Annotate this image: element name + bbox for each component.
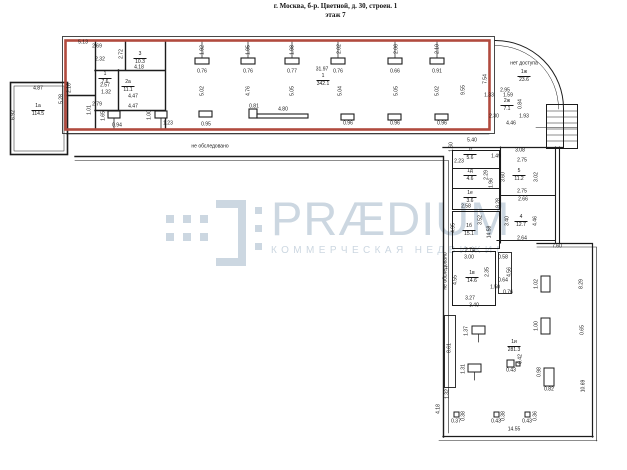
plan-title: г. Москва, б-р. Цветной, д. 30, строен. … xyxy=(22,2,627,20)
dimension-label: 0.91 xyxy=(432,70,442,75)
dimension-label: 5.04 xyxy=(339,86,344,96)
dimension-label: 5.05 xyxy=(291,86,296,96)
dimension-label: 7.60 xyxy=(552,245,562,250)
dimension-label: 1.65 xyxy=(102,111,107,121)
dimension-label: 1.60 xyxy=(450,142,455,152)
dimension-label: 4.80 xyxy=(278,108,288,113)
dimension-label: 0.95 xyxy=(201,123,211,128)
room-number: 1б xyxy=(466,224,472,229)
dimension-label: 1.32 xyxy=(101,91,111,96)
dimension-label: 1.49 xyxy=(491,155,501,160)
room-label: 2а11.1 xyxy=(122,80,135,94)
dimension-label: 2.30 xyxy=(489,115,499,120)
dimension-label: 2.69 xyxy=(92,45,102,50)
dimension-label: 0.64 xyxy=(498,279,508,284)
room-number: 2а xyxy=(125,80,131,85)
dimension-label: 0.96 xyxy=(343,122,353,127)
dimension-label: 1.01 xyxy=(88,105,93,115)
room-area: 11.1 xyxy=(123,88,132,93)
room-number: 5 xyxy=(518,169,521,174)
dimension-label: 3.60 xyxy=(502,172,507,182)
room-number: 4 xyxy=(520,215,523,220)
note-label: не обследовано xyxy=(444,252,449,289)
dimension-label: 0.42 xyxy=(519,354,524,364)
room-number: 3 xyxy=(139,52,142,57)
dimension-label: 10.69 xyxy=(582,380,587,393)
room-number: 1е xyxy=(467,191,473,196)
room-label: 1г5.6 xyxy=(464,148,477,162)
dimension-label: 0.37 xyxy=(451,420,461,425)
dimension-label: 14.58 xyxy=(488,226,493,239)
dimension-label: 3.40 xyxy=(469,304,479,309)
room-label: 412.7 xyxy=(515,215,528,229)
dimension-label: 1.93 xyxy=(519,115,529,120)
room-number: 1а xyxy=(35,104,41,109)
room-area: 281.3 xyxy=(508,348,521,353)
room-label: 2ж7.1 xyxy=(501,99,514,113)
room-number: 1ж xyxy=(521,70,527,75)
dimension-label: 4.95 xyxy=(452,223,457,233)
dimension-label: 4.46 xyxy=(506,122,516,127)
dimension-label: 0.36 xyxy=(534,411,539,421)
dimension-label: 1.23 xyxy=(163,122,173,127)
dimension-label: 0.81 xyxy=(249,105,259,110)
dimension-label: 3.40 xyxy=(506,216,511,226)
room-label: 1а114.5 xyxy=(32,104,45,118)
dimension-label: 4.56 xyxy=(508,267,513,277)
room-area: 114.5 xyxy=(32,112,44,117)
dimension-label: 0.38 xyxy=(462,411,467,421)
dimension-label: 0.96 xyxy=(437,122,447,127)
dimension-label: 2.58 xyxy=(461,205,471,210)
dimension-label: 2.75 xyxy=(517,190,527,195)
dimension-label: 2.32 xyxy=(95,58,105,63)
dimension-label: 2.16 xyxy=(68,83,73,93)
dimension-label: 1.96 xyxy=(490,178,495,188)
dimension-label: 4.18 xyxy=(134,66,144,71)
dimension-label: 31.97 xyxy=(316,68,329,73)
dimension-label: 1.37 xyxy=(465,326,470,336)
dimension-label: 3.00 xyxy=(464,256,474,261)
room-area: 15.1 xyxy=(464,232,474,237)
dimension-label: 0.65 xyxy=(581,325,586,335)
room-area: 12.7 xyxy=(516,223,526,228)
plan-labels: 4.876.925.282.165.132.692.322.724.182.57… xyxy=(0,0,627,470)
dimension-label: 2.66 xyxy=(518,198,528,203)
dimension-label: 0.43 xyxy=(506,369,516,374)
dimension-label: 4.46 xyxy=(534,216,539,226)
dimension-label: 2.79 xyxy=(92,103,102,108)
dimension-label: 3.08 xyxy=(515,149,525,154)
dimension-label: 2.23 xyxy=(454,160,464,165)
dimension-label: 1.00 xyxy=(535,321,540,331)
dimension-label: 0.76 xyxy=(503,291,513,296)
dimension-label: 5.05 xyxy=(395,86,400,96)
note-label: нет доступа xyxy=(510,62,538,67)
dimension-label: 1.31 xyxy=(462,364,467,374)
dimension-label: 0.58 xyxy=(498,256,508,261)
dimension-label: 1.00 xyxy=(148,110,153,120)
dimension-label: 5.40 xyxy=(467,139,477,144)
room-label: 1342.1 xyxy=(317,74,330,88)
room-number: 1д xyxy=(467,169,473,174)
dimension-label: 0.76 xyxy=(243,70,253,75)
dimension-label: 3.27 xyxy=(465,297,475,302)
room-label: 1б15.1 xyxy=(463,224,476,238)
room-label: 310.3 xyxy=(134,52,147,66)
dimension-label: 1.32 xyxy=(446,389,451,399)
dimension-label: 2.64 xyxy=(517,237,527,242)
dimension-label: 1.50 xyxy=(490,286,500,291)
room-label: 17.6 xyxy=(99,72,112,86)
room-area: 23.6 xyxy=(519,78,529,83)
room-label: 1е3.6 xyxy=(464,191,477,205)
dimension-label: 3.02 xyxy=(535,172,540,182)
dimension-label: 0.43 xyxy=(522,420,532,425)
dimension-label: 1.02 xyxy=(535,279,540,289)
dimension-label: 2.35 xyxy=(486,267,491,277)
dimension-label: 0.84 xyxy=(519,99,524,109)
dimension-label: 0.76 xyxy=(333,70,343,75)
dimension-label: 9.55 xyxy=(462,85,467,95)
dimension-label: 4.47 xyxy=(128,105,138,110)
dimension-label: 4.87 xyxy=(33,87,43,92)
plan-address: г. Москва, б-р. Цветной, д. 30, строен. … xyxy=(22,2,627,11)
room-number: 1г xyxy=(468,148,473,153)
dimension-label: 0.94 xyxy=(112,124,122,129)
dimension-label: 4.55 xyxy=(454,275,459,285)
room-label: 1в14.6 xyxy=(466,271,479,285)
dimension-label: 0.96 xyxy=(390,122,400,127)
dimension-label: 1.95 xyxy=(247,45,252,55)
dimension-label: 4.18 xyxy=(437,404,442,414)
dimension-label: 5.13 xyxy=(78,41,88,46)
dimension-label: 9.28 xyxy=(497,198,502,208)
dimension-label: 2.75 xyxy=(517,159,527,164)
dimension-label: 1.98 xyxy=(291,45,296,55)
room-number: 1 xyxy=(104,72,107,77)
room-area: 5.6 xyxy=(467,156,474,161)
room-label: 1и281.3 xyxy=(508,340,521,354)
dimension-label: 2.72 xyxy=(120,49,125,59)
room-area: 342.1 xyxy=(317,82,330,87)
dimension-label: 8.29 xyxy=(580,279,585,289)
room-number: 2ж xyxy=(504,99,510,104)
dimension-label: 1.33 xyxy=(484,94,494,99)
dimension-label: 5.02 xyxy=(436,86,441,96)
dimension-label: 0.77 xyxy=(287,70,297,75)
dimension-label: 2.10 xyxy=(436,44,441,54)
note-label: не обследовано xyxy=(191,145,228,150)
dimension-label: 2.74 xyxy=(465,249,475,254)
room-area: 14.6 xyxy=(467,279,477,284)
dimension-label: 0.76 xyxy=(197,70,207,75)
room-number: 1в xyxy=(469,271,474,276)
dimension-label: 0.38 xyxy=(502,411,507,421)
dimension-label: 0.66 xyxy=(390,70,400,75)
dimension-label: 0.98 xyxy=(538,367,543,377)
dimension-label: 0.82 xyxy=(544,388,554,393)
room-area: 4.6 xyxy=(467,177,474,182)
dimension-label: 2.06 xyxy=(395,44,400,54)
dimension-label: 0.43 xyxy=(491,420,501,425)
room-number: 1и xyxy=(511,340,517,345)
room-label: 1ж23.6 xyxy=(518,70,531,84)
dimension-label: 1.92 xyxy=(201,45,206,55)
room-area: 11.2 xyxy=(514,177,523,182)
room-area: 7.6 xyxy=(102,80,109,85)
dimension-label: 4.76 xyxy=(247,86,252,96)
room-label: 1д4.6 xyxy=(464,169,477,183)
dimension-label: 7.54 xyxy=(484,74,489,84)
dimension-label: 3.52 xyxy=(479,215,484,225)
dimension-label: 5.02 xyxy=(201,86,206,96)
floorplan-page: г. Москва, б-р. Цветной, д. 30, строен. … xyxy=(0,0,627,470)
room-label: 511.2 xyxy=(513,169,526,183)
room-area: 7.1 xyxy=(504,107,511,112)
dimension-label: 4.47 xyxy=(128,95,138,100)
dimension-label: 6.92 xyxy=(12,110,17,120)
dimension-label: 5.28 xyxy=(60,94,65,104)
room-area: 10.3 xyxy=(135,60,145,65)
room-number: 1 xyxy=(322,74,325,79)
plan-floor: этаж 7 xyxy=(22,11,627,20)
room-area: 3.6 xyxy=(467,199,474,204)
dimension-label: 8.61 xyxy=(448,343,453,353)
dimension-label: 2.02 xyxy=(338,44,343,54)
dimension-label: 14.55 xyxy=(508,428,521,433)
